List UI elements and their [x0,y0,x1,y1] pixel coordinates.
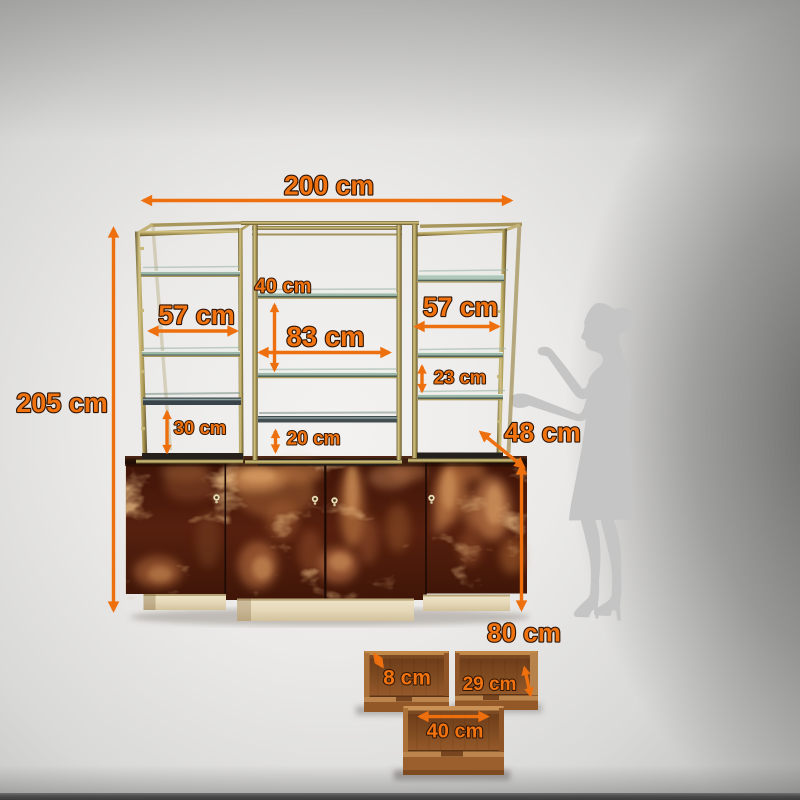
svg-text:20 cm: 20 cm [287,429,341,450]
svg-text:40 cm: 40 cm [427,721,484,743]
svg-text:200 cm: 200 cm [284,171,374,201]
svg-text:57 cm: 57 cm [158,300,235,330]
svg-text:57 cm: 57 cm [423,292,498,322]
svg-text:23 cm: 23 cm [434,367,486,388]
svg-text:205 cm: 205 cm [16,388,108,418]
svg-text:40 cm: 40 cm [255,276,312,298]
svg-text:30 cm: 30 cm [174,417,226,438]
svg-text:80 cm: 80 cm [487,618,561,648]
svg-text:48 cm: 48 cm [504,418,581,448]
svg-text:83 cm: 83 cm [287,321,365,352]
svg-text:29 cm: 29 cm [463,674,517,695]
svg-text:8 cm: 8 cm [383,667,431,690]
